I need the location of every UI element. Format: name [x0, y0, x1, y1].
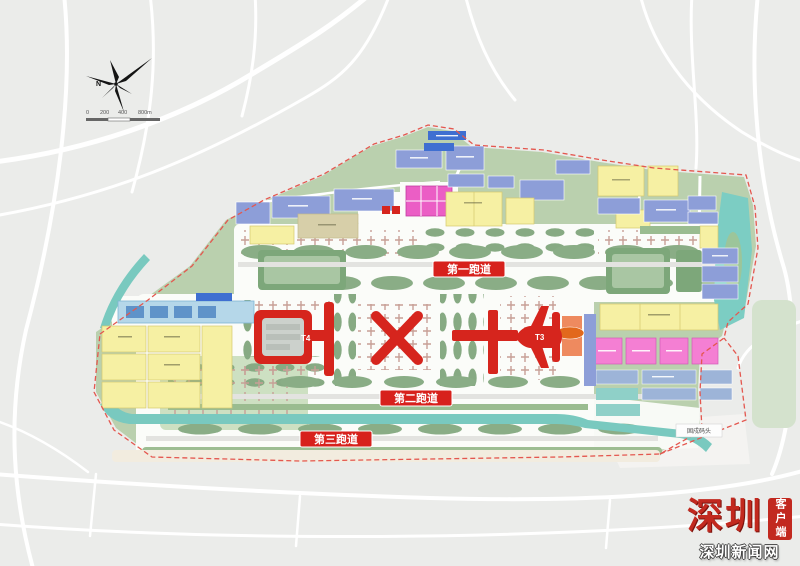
- map-canvas: T4 T3 第一跑道 第二跑道 第三跑道: [0, 0, 800, 566]
- svg-text:200: 200: [100, 110, 109, 116]
- svg-text:第一跑道: 第一跑道: [447, 262, 491, 276]
- svg-text:第二跑道: 第二跑道: [394, 391, 438, 405]
- svg-text:第三跑道: 第三跑道: [314, 432, 358, 446]
- dock-label: 固戍码头: [676, 424, 722, 437]
- runway-3-badge: 第三跑道: [300, 431, 372, 447]
- runway-2-badge: 第二跑道: [380, 390, 452, 406]
- svg-text:固戍码头: 固戍码头: [687, 427, 711, 435]
- terminal-t3-label: T3: [535, 333, 545, 342]
- svg-text:800m: 800m: [138, 110, 152, 116]
- svg-text:0: 0: [86, 110, 89, 116]
- airport-master-plan-map: T4 T3 第一跑道 第二跑道 第三跑道: [0, 0, 800, 566]
- west-cargo-zone: [102, 301, 254, 408]
- logo-site-name: 深圳新闻网: [687, 541, 792, 562]
- news-logo: 深圳 客户端 深圳新闻网: [687, 498, 792, 562]
- runway-3-line: [146, 436, 658, 441]
- terminal-t4-label: T4: [301, 334, 311, 343]
- logo-badge-client: 客户端: [768, 498, 792, 540]
- logo-mark: 深圳: [687, 498, 763, 540]
- outer-green-patch: [752, 300, 796, 428]
- compass-north-label: N: [96, 81, 101, 88]
- runway-1-badge: 第一跑道: [433, 261, 505, 277]
- svg-text:400: 400: [118, 110, 127, 116]
